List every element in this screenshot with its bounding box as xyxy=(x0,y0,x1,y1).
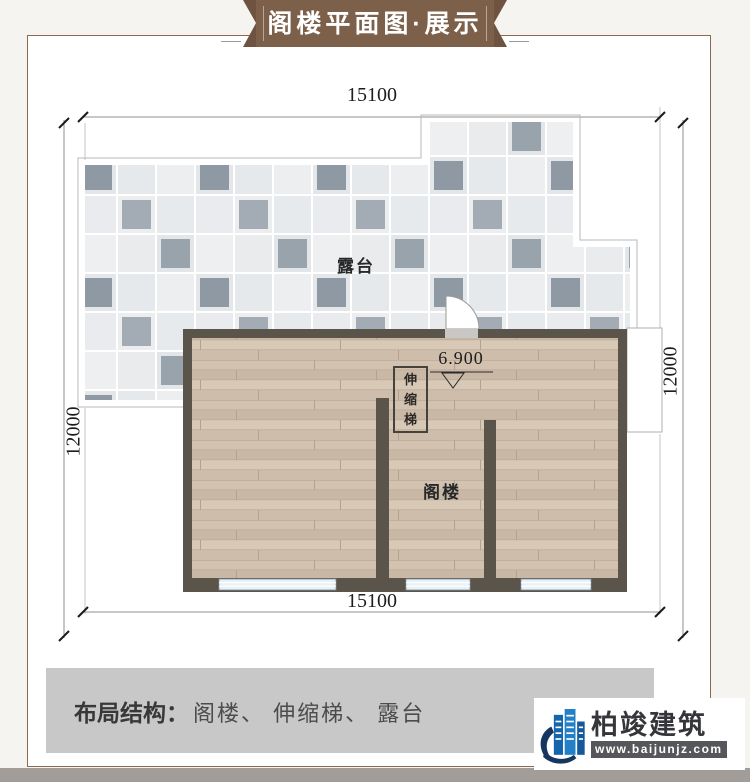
dimension-right: 12000 xyxy=(660,312,683,432)
right-eave-outline xyxy=(627,328,662,432)
attic-label: 阁楼 xyxy=(402,478,482,503)
wall-left xyxy=(183,338,192,581)
wall-top-right-segment xyxy=(478,329,627,338)
bottom-edge-band xyxy=(0,768,750,782)
wall-interior-left xyxy=(376,398,389,581)
dimension-left: 12000 xyxy=(63,372,86,492)
wall-interior-right xyxy=(484,420,496,581)
dimension-top: 15100 xyxy=(312,84,432,107)
logo-website: www.baijunjz.com xyxy=(591,741,727,758)
terrace-label: 露台 xyxy=(321,252,391,277)
building-swoosh-icon xyxy=(538,703,588,765)
door-threshold xyxy=(445,329,478,338)
telescopic-ladder-box: 伸缩梯 xyxy=(393,366,428,433)
page: 阁楼平面图·展示 15100 15100 12000 12000 露台 阁楼 6… xyxy=(0,0,750,782)
layout-structure-label: 布局结构： xyxy=(74,700,189,726)
wall-right xyxy=(618,338,627,581)
window-middle xyxy=(406,579,470,590)
page-title: 阁楼平面图·展示 xyxy=(243,0,507,47)
ladder-label: 伸缩梯 xyxy=(404,370,418,430)
banner-left-dash xyxy=(221,41,241,42)
dimension-bottom: 15100 xyxy=(312,590,432,613)
company-logo: 柏竣建筑 www.baijunjz.com xyxy=(534,698,745,770)
window-left xyxy=(219,579,336,590)
banner-right-dash xyxy=(509,41,529,42)
title-ribbon: 阁楼平面图·展示 xyxy=(243,0,507,47)
logo-brand-name: 柏竣建筑 xyxy=(591,711,727,739)
window-right xyxy=(521,579,591,590)
layout-structure-items: 阁楼、 伸缩梯、 露台 xyxy=(193,701,425,726)
wall-top-left-segment xyxy=(183,329,445,338)
elevation-value: 6.900 xyxy=(416,348,506,369)
